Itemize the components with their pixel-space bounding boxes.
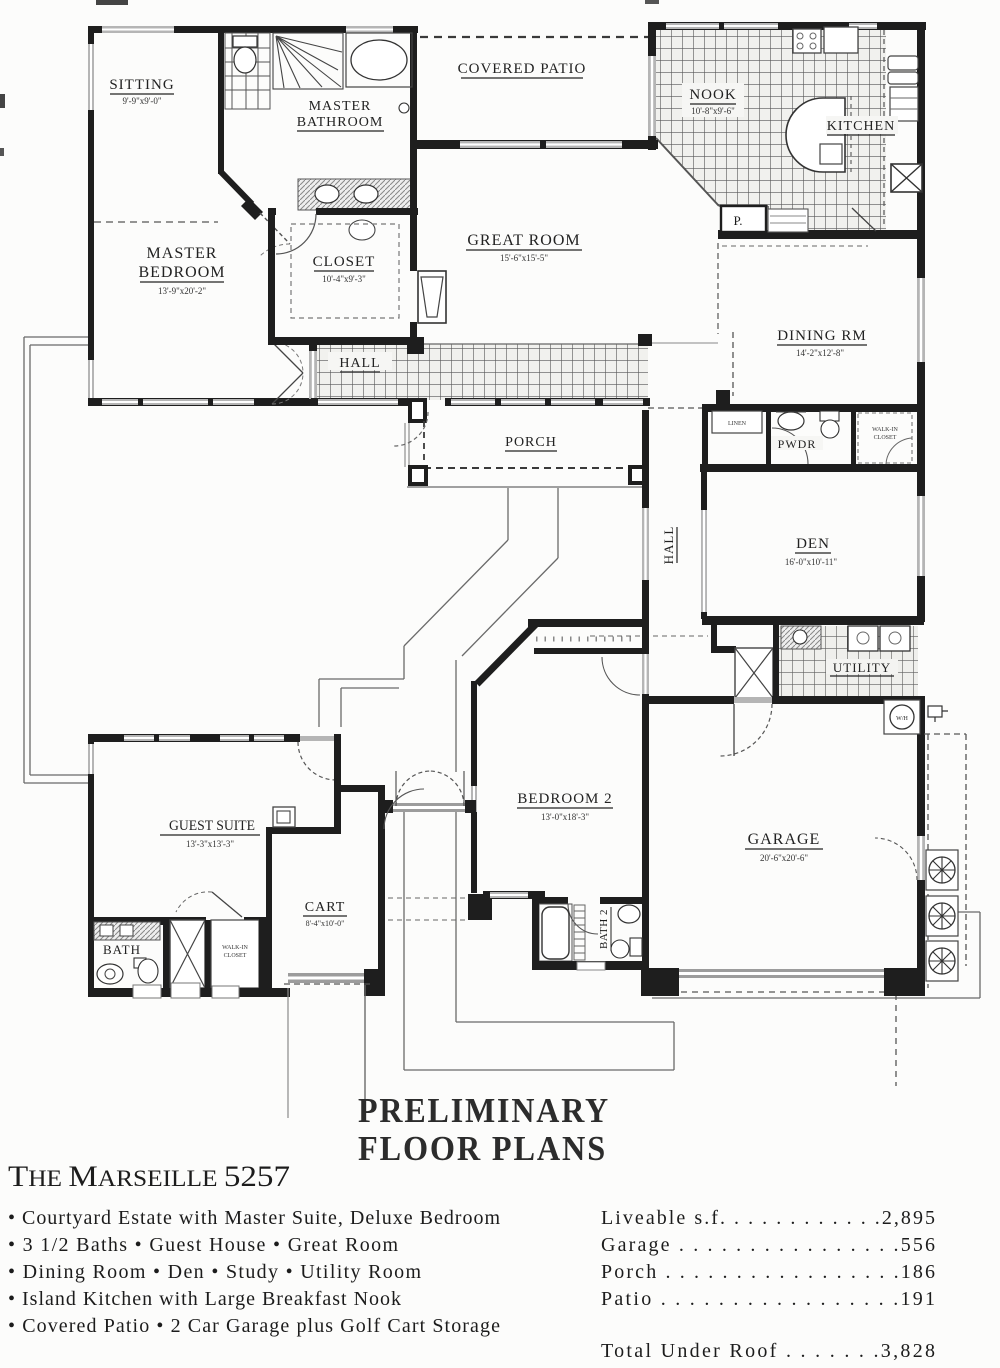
svg-text:PORCH: PORCH <box>505 435 557 450</box>
svg-text:CLOSET: CLOSET <box>874 435 897 441</box>
svg-text:BATH 2: BATH 2 <box>598 909 610 949</box>
svg-text:10'-4"x9'-3": 10'-4"x9'-3" <box>322 274 366 284</box>
svg-text:BATHROOM: BATHROOM <box>297 115 384 130</box>
svg-text:13'-3"x13'-3": 13'-3"x13'-3" <box>186 839 234 849</box>
svg-text:NOOK: NOOK <box>689 87 736 103</box>
svg-text:HALL: HALL <box>661 526 676 565</box>
svg-text:• Covered Patio • 2 Car Garage: • Covered Patio • 2 Car Garage plus Golf… <box>8 1315 500 1337</box>
svg-text:HALL: HALL <box>339 356 380 371</box>
svg-text:DINING RM: DINING RM <box>777 328 866 344</box>
svg-text:WALK-IN: WALK-IN <box>222 945 248 951</box>
svg-text:• Courtyard Estate with Master: • Courtyard Estate with Master Suite, De… <box>8 1207 500 1229</box>
svg-text:15'-6"x15'-5": 15'-6"x15'-5" <box>500 253 548 263</box>
svg-text:CLOSET: CLOSET <box>313 254 376 270</box>
svg-text:KITCHEN: KITCHEN <box>827 119 895 134</box>
svg-text:COVERED PATIO: COVERED PATIO <box>458 61 587 77</box>
svg-text:SITTING: SITTING <box>109 77 174 93</box>
svg-text:GARAGE: GARAGE <box>748 831 821 848</box>
svg-text:CLOSET: CLOSET <box>224 953 247 959</box>
svg-text:20'-6"x20'-6": 20'-6"x20'-6" <box>760 853 808 863</box>
svg-text:LINEN: LINEN <box>728 421 747 427</box>
svg-text:PRELIMINARY: PRELIMINARY <box>358 1091 610 1130</box>
svg-text:UTILITY: UTILITY <box>833 660 891 675</box>
svg-text:MASTER: MASTER <box>147 245 218 262</box>
svg-text:8'-4"x10'-0": 8'-4"x10'-0" <box>306 919 345 928</box>
svg-text:• Island Kitchen with Large Br: • Island Kitchen with Large Breakfast No… <box>8 1288 401 1310</box>
svg-text:10'-8"x9'-6": 10'-8"x9'-6" <box>691 106 735 116</box>
svg-text:13'-9"x20'-2": 13'-9"x20'-2" <box>158 286 206 296</box>
svg-text:W/H: W/H <box>896 716 908 722</box>
svg-text:9'-9"x9'-0": 9'-9"x9'-0" <box>122 96 161 106</box>
svg-text:GUEST SUITE: GUEST SUITE <box>169 818 255 834</box>
svg-text:PWDR: PWDR <box>778 437 817 451</box>
svg-text:BATH: BATH <box>103 942 141 957</box>
svg-text:BEDROOM 2: BEDROOM 2 <box>517 791 612 807</box>
svg-text:• Dining Room • Den • Study •: • Dining Room • Den • Study • Utility Ro… <box>8 1261 421 1283</box>
svg-text:CART: CART <box>305 900 346 915</box>
svg-text:DEN: DEN <box>796 536 830 552</box>
svg-text:13'-0"x18'-3": 13'-0"x18'-3" <box>541 812 589 822</box>
svg-text:16'-0"x10'-11": 16'-0"x10'-11" <box>785 557 838 567</box>
svg-text:BEDROOM: BEDROOM <box>138 264 225 281</box>
svg-text:FLOOR PLANS: FLOOR PLANS <box>358 1129 607 1168</box>
svg-text:GREAT ROOM: GREAT ROOM <box>467 232 580 249</box>
svg-text:WALK-IN: WALK-IN <box>872 427 898 433</box>
svg-text:• 3 1/2 Baths • Guest House •: • 3 1/2 Baths • Guest House • Great Room <box>8 1234 398 1256</box>
svg-text:P.: P. <box>733 213 742 228</box>
svg-text:14'-2"x12'-8": 14'-2"x12'-8" <box>796 348 844 358</box>
svg-text:MASTER: MASTER <box>309 99 372 114</box>
